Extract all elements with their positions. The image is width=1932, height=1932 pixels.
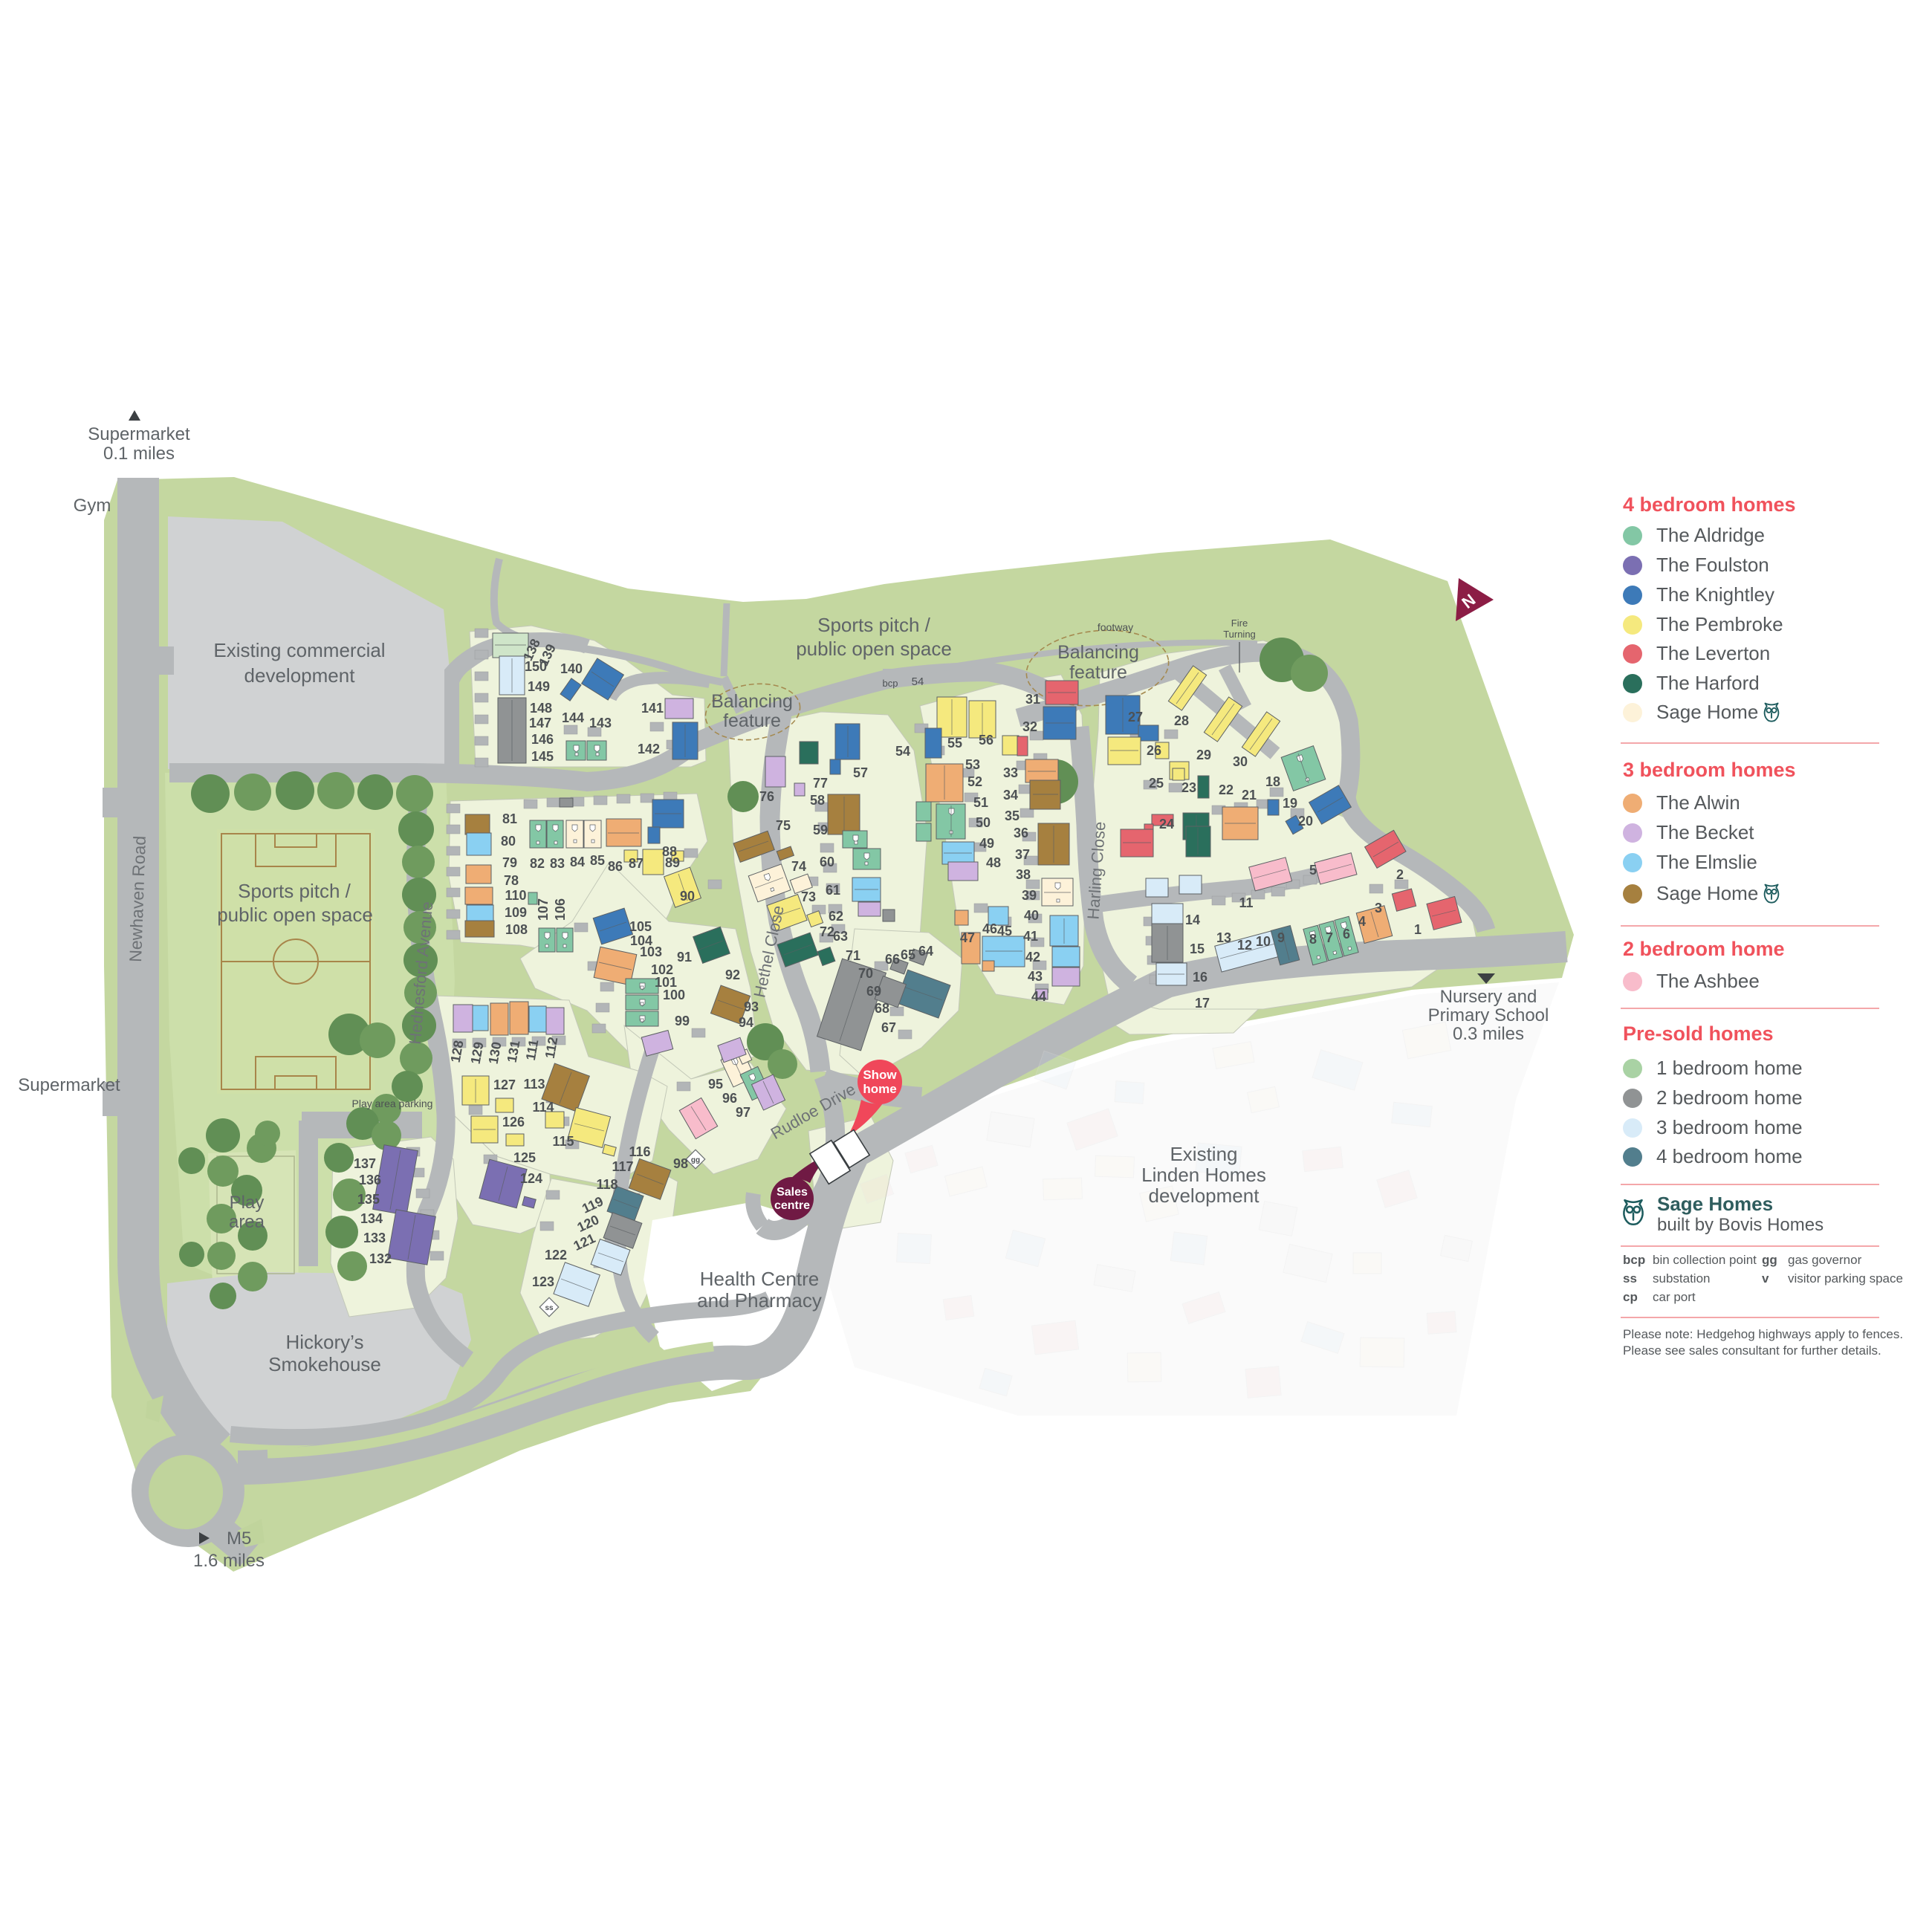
svg-text:38: 38: [1016, 867, 1031, 882]
svg-text:11: 11: [1239, 895, 1253, 910]
svg-text:17: 17: [1195, 996, 1210, 1011]
svg-text:v: v: [1762, 1271, 1769, 1286]
svg-text:Sage Home: Sage Home: [1656, 882, 1758, 904]
svg-text:Pre-sold homes: Pre-sold homes: [1623, 1022, 1774, 1045]
svg-text:72: 72: [820, 924, 834, 939]
svg-text:65: 65: [901, 947, 915, 962]
svg-text:22: 22: [1219, 782, 1234, 797]
svg-text:30: 30: [1233, 754, 1248, 769]
svg-text:116: 116: [629, 1144, 650, 1159]
svg-text:1.6 miles: 1.6 miles: [193, 1551, 265, 1571]
svg-text:122: 122: [545, 1248, 567, 1262]
svg-text:bin collection point: bin collection point: [1653, 1253, 1757, 1267]
svg-text:80: 80: [501, 834, 516, 849]
svg-text:23: 23: [1181, 780, 1196, 795]
svg-text:63: 63: [833, 929, 848, 944]
svg-text:73: 73: [801, 889, 816, 904]
svg-text:31: 31: [1025, 692, 1040, 707]
svg-text:142: 142: [638, 742, 660, 756]
svg-text:143: 143: [589, 716, 612, 730]
svg-text:Sales: Sales: [777, 1186, 808, 1199]
svg-text:19: 19: [1283, 796, 1297, 811]
svg-text:82: 82: [530, 856, 545, 871]
svg-text:108: 108: [505, 922, 528, 937]
svg-text:gg: gg: [1762, 1253, 1777, 1267]
svg-text:101: 101: [655, 975, 677, 990]
svg-text:148: 148: [530, 701, 552, 716]
svg-text:36: 36: [1014, 826, 1028, 840]
svg-text:Sports pitch /: Sports pitch /: [238, 880, 351, 902]
svg-text:137: 137: [354, 1156, 376, 1171]
svg-text:centre: centre: [774, 1199, 810, 1212]
svg-text:33: 33: [1003, 765, 1018, 780]
svg-text:84: 84: [570, 855, 585, 869]
svg-text:2 bedroom home: 2 bedroom home: [1623, 938, 1785, 960]
svg-text:The Alwin: The Alwin: [1656, 791, 1740, 814]
svg-text:100: 100: [663, 988, 685, 1002]
svg-text:145: 145: [531, 749, 554, 764]
svg-text:Supermarket: Supermarket: [18, 1075, 120, 1095]
svg-text:built by Bovis Homes: built by Bovis Homes: [1657, 1215, 1824, 1235]
svg-text:83: 83: [550, 856, 565, 871]
svg-text:18: 18: [1265, 774, 1280, 789]
svg-text:105: 105: [629, 919, 652, 934]
svg-text:107: 107: [536, 898, 551, 921]
svg-text:136: 136: [359, 1173, 381, 1187]
svg-text:ss: ss: [545, 1304, 554, 1312]
svg-text:64: 64: [918, 944, 933, 959]
svg-text:51: 51: [973, 795, 988, 810]
svg-text:14: 14: [1185, 912, 1200, 927]
svg-text:3 bedroom homes: 3 bedroom homes: [1623, 759, 1796, 781]
svg-text:8: 8: [1309, 932, 1317, 947]
svg-text:127: 127: [493, 1077, 516, 1092]
svg-text:The Elmslie: The Elmslie: [1656, 851, 1757, 873]
svg-text:115: 115: [552, 1134, 574, 1149]
svg-text:146: 146: [531, 732, 554, 747]
svg-text:140: 140: [560, 661, 583, 676]
svg-text:66: 66: [885, 952, 900, 967]
svg-text:21: 21: [1242, 788, 1257, 803]
svg-text:50: 50: [976, 815, 991, 830]
svg-text:6: 6: [1343, 927, 1350, 941]
svg-text:2: 2: [1396, 867, 1404, 882]
svg-text:Sports pitch /: Sports pitch /: [817, 614, 931, 636]
svg-text:94: 94: [739, 1015, 753, 1030]
svg-text:74: 74: [791, 859, 806, 874]
svg-text:126: 126: [502, 1115, 525, 1129]
svg-text:106: 106: [553, 898, 568, 921]
svg-text:car port: car port: [1653, 1290, 1696, 1304]
svg-text:area: area: [229, 1212, 265, 1232]
svg-text:Sage Home: Sage Home: [1656, 701, 1758, 723]
svg-text:41: 41: [1023, 929, 1038, 944]
svg-text:132: 132: [369, 1251, 392, 1266]
svg-text:29: 29: [1196, 748, 1211, 762]
svg-text:0.1 miles: 0.1 miles: [103, 444, 175, 464]
svg-text:3 bedroom home: 3 bedroom home: [1656, 1116, 1803, 1138]
svg-text:The Harford: The Harford: [1656, 672, 1760, 694]
svg-text:3: 3: [1375, 901, 1382, 915]
svg-text:Please see sales consultant fo: Please see sales consultant for further …: [1623, 1343, 1881, 1358]
svg-text:44: 44: [1031, 989, 1046, 1004]
svg-text:147: 147: [529, 716, 551, 730]
svg-text:Gym: Gym: [74, 496, 111, 516]
svg-text:27: 27: [1128, 710, 1143, 724]
svg-text:Show: Show: [863, 1068, 897, 1082]
svg-text:141: 141: [641, 701, 664, 716]
svg-text:67: 67: [881, 1020, 896, 1035]
svg-text:37: 37: [1015, 847, 1030, 862]
svg-text:93: 93: [744, 999, 759, 1014]
svg-text:Supermarket: Supermarket: [88, 424, 190, 444]
svg-text:71: 71: [846, 948, 860, 963]
svg-text:development: development: [244, 664, 356, 687]
svg-text:70: 70: [858, 966, 873, 981]
svg-text:47: 47: [960, 930, 975, 945]
svg-text:57: 57: [853, 765, 868, 780]
svg-text:125: 125: [513, 1150, 536, 1165]
svg-text:77: 77: [813, 776, 828, 791]
svg-text:Existing commercial: Existing commercial: [213, 639, 385, 661]
svg-text:40: 40: [1024, 908, 1039, 923]
svg-text:The Pembroke: The Pembroke: [1656, 613, 1783, 635]
svg-text:85: 85: [590, 853, 605, 868]
svg-text:Balancing: Balancing: [711, 691, 793, 712]
svg-text:79: 79: [502, 855, 517, 870]
svg-text:97: 97: [736, 1105, 751, 1120]
svg-text:114: 114: [532, 1100, 554, 1115]
svg-text:The Ashbee: The Ashbee: [1656, 970, 1760, 992]
svg-text:M5: M5: [227, 1529, 251, 1549]
svg-text:39: 39: [1022, 888, 1037, 903]
svg-text:53: 53: [965, 757, 980, 772]
svg-text:43: 43: [1028, 969, 1043, 984]
svg-text:96: 96: [722, 1091, 737, 1106]
svg-text:bcp: bcp: [883, 678, 898, 689]
svg-text:32: 32: [1022, 719, 1037, 734]
svg-text:1 bedroom home: 1 bedroom home: [1656, 1057, 1803, 1079]
svg-text:feature: feature: [1069, 662, 1127, 683]
svg-text:16: 16: [1193, 970, 1207, 985]
svg-text:Health Centre: Health Centre: [700, 1268, 819, 1290]
svg-text:24: 24: [1159, 817, 1174, 832]
svg-text:Play area parking: Play area parking: [352, 1098, 433, 1109]
svg-text:visitor parking space: visitor parking space: [1788, 1271, 1903, 1286]
svg-text:The Foulston: The Foulston: [1656, 554, 1769, 576]
svg-text:75: 75: [776, 818, 791, 833]
svg-text:10: 10: [1256, 934, 1271, 949]
svg-text:48: 48: [986, 855, 1001, 870]
svg-text:12: 12: [1237, 938, 1252, 953]
svg-text:42: 42: [1025, 950, 1040, 965]
svg-text:Nursery and: Nursery and: [1440, 987, 1537, 1007]
svg-text:92: 92: [725, 967, 740, 982]
svg-text:35: 35: [1005, 808, 1020, 823]
svg-text:Sage Homes: Sage Homes: [1657, 1193, 1773, 1215]
svg-text:feature: feature: [723, 710, 781, 731]
svg-text:49: 49: [979, 836, 994, 851]
svg-text:95: 95: [708, 1077, 723, 1092]
svg-text:bcp: bcp: [1623, 1253, 1645, 1267]
svg-text:2 bedroom home: 2 bedroom home: [1656, 1086, 1803, 1109]
svg-text:footway: footway: [1098, 621, 1133, 633]
svg-text:9: 9: [1277, 930, 1285, 945]
svg-text:124: 124: [520, 1171, 542, 1186]
svg-text:118: 118: [596, 1177, 617, 1192]
svg-text:28: 28: [1174, 713, 1189, 728]
svg-text:Fire: Fire: [1231, 617, 1248, 629]
svg-text:62: 62: [829, 909, 843, 924]
svg-text:development: development: [1149, 1184, 1260, 1207]
svg-text:52: 52: [967, 774, 982, 789]
svg-text:55: 55: [947, 736, 962, 751]
svg-text:Hickory’s: Hickory’s: [286, 1331, 364, 1353]
svg-text:26: 26: [1147, 743, 1161, 758]
svg-text:76: 76: [759, 789, 774, 804]
svg-text:Linden Homes: Linden Homes: [1141, 1164, 1266, 1186]
svg-text:The Aldridge: The Aldridge: [1656, 524, 1765, 546]
svg-text:Balancing: Balancing: [1057, 642, 1139, 663]
svg-text:34: 34: [1003, 788, 1018, 803]
svg-text:134: 134: [360, 1211, 383, 1226]
svg-text:89: 89: [665, 855, 680, 870]
svg-text:cp: cp: [1623, 1290, 1638, 1304]
svg-text:1: 1: [1414, 922, 1422, 937]
svg-text:102: 102: [651, 962, 673, 977]
svg-text:109: 109: [505, 905, 527, 920]
svg-text:104: 104: [630, 933, 652, 948]
svg-text:135: 135: [357, 1192, 380, 1207]
svg-text:149: 149: [528, 679, 550, 694]
svg-text:Existing: Existing: [1170, 1143, 1237, 1165]
svg-text:The Knightley: The Knightley: [1656, 583, 1774, 606]
svg-text:110: 110: [505, 888, 526, 903]
svg-text:91: 91: [677, 950, 692, 965]
svg-text:87: 87: [629, 856, 644, 871]
svg-text:117: 117: [612, 1159, 633, 1174]
svg-text:public open space: public open space: [796, 638, 952, 660]
svg-text:68: 68: [875, 1001, 889, 1016]
svg-text:5: 5: [1309, 863, 1317, 878]
svg-text:The Leverton: The Leverton: [1656, 642, 1770, 664]
svg-text:54: 54: [895, 744, 910, 759]
svg-text:123: 123: [532, 1274, 554, 1289]
svg-text:99: 99: [675, 1014, 690, 1028]
svg-text:133: 133: [363, 1231, 386, 1245]
svg-text:Smokehouse: Smokehouse: [268, 1353, 381, 1375]
svg-text:gg: gg: [691, 1156, 700, 1164]
svg-text:69: 69: [866, 984, 881, 999]
svg-text:gas governor: gas governor: [1788, 1253, 1862, 1267]
svg-text:56: 56: [979, 733, 993, 748]
svg-text:4: 4: [1358, 914, 1366, 929]
svg-text:13: 13: [1216, 930, 1231, 945]
svg-text:25: 25: [1149, 776, 1164, 791]
svg-text:7: 7: [1326, 930, 1333, 945]
svg-text:113: 113: [523, 1077, 545, 1092]
svg-text:58: 58: [810, 793, 825, 808]
svg-text:0.3 miles: 0.3 miles: [1453, 1024, 1524, 1044]
svg-text:home: home: [863, 1082, 896, 1096]
svg-text:54: 54: [912, 675, 924, 688]
svg-text:public open space: public open space: [217, 904, 373, 926]
svg-text:86: 86: [608, 859, 623, 874]
svg-text:144: 144: [562, 710, 584, 725]
svg-text:46: 46: [982, 921, 997, 936]
svg-text:59: 59: [813, 823, 828, 837]
svg-text:20: 20: [1298, 814, 1313, 829]
svg-text:Primary School: Primary School: [1428, 1005, 1549, 1025]
svg-text:15: 15: [1190, 941, 1205, 956]
svg-text:90: 90: [680, 889, 695, 904]
svg-text:98: 98: [673, 1156, 688, 1171]
svg-text:45: 45: [997, 924, 1012, 939]
svg-text:61: 61: [826, 883, 840, 898]
svg-text:ss: ss: [1623, 1271, 1637, 1286]
svg-text:60: 60: [820, 855, 834, 869]
svg-text:Turning: Turning: [1223, 629, 1256, 640]
svg-text:78: 78: [504, 873, 519, 888]
svg-text:81: 81: [502, 811, 517, 826]
svg-text:substation: substation: [1653, 1271, 1711, 1286]
svg-text:Play: Play: [230, 1193, 265, 1213]
svg-text:and Pharmacy: and Pharmacy: [697, 1289, 822, 1312]
svg-text:4 bedroom homes: 4 bedroom homes: [1623, 493, 1796, 516]
svg-text:4 bedroom home: 4 bedroom home: [1656, 1145, 1803, 1167]
svg-text:Please note: Hedgehog highways: Please note: Hedgehog highways apply to …: [1623, 1327, 1903, 1341]
svg-text:The Becket: The Becket: [1656, 821, 1754, 843]
